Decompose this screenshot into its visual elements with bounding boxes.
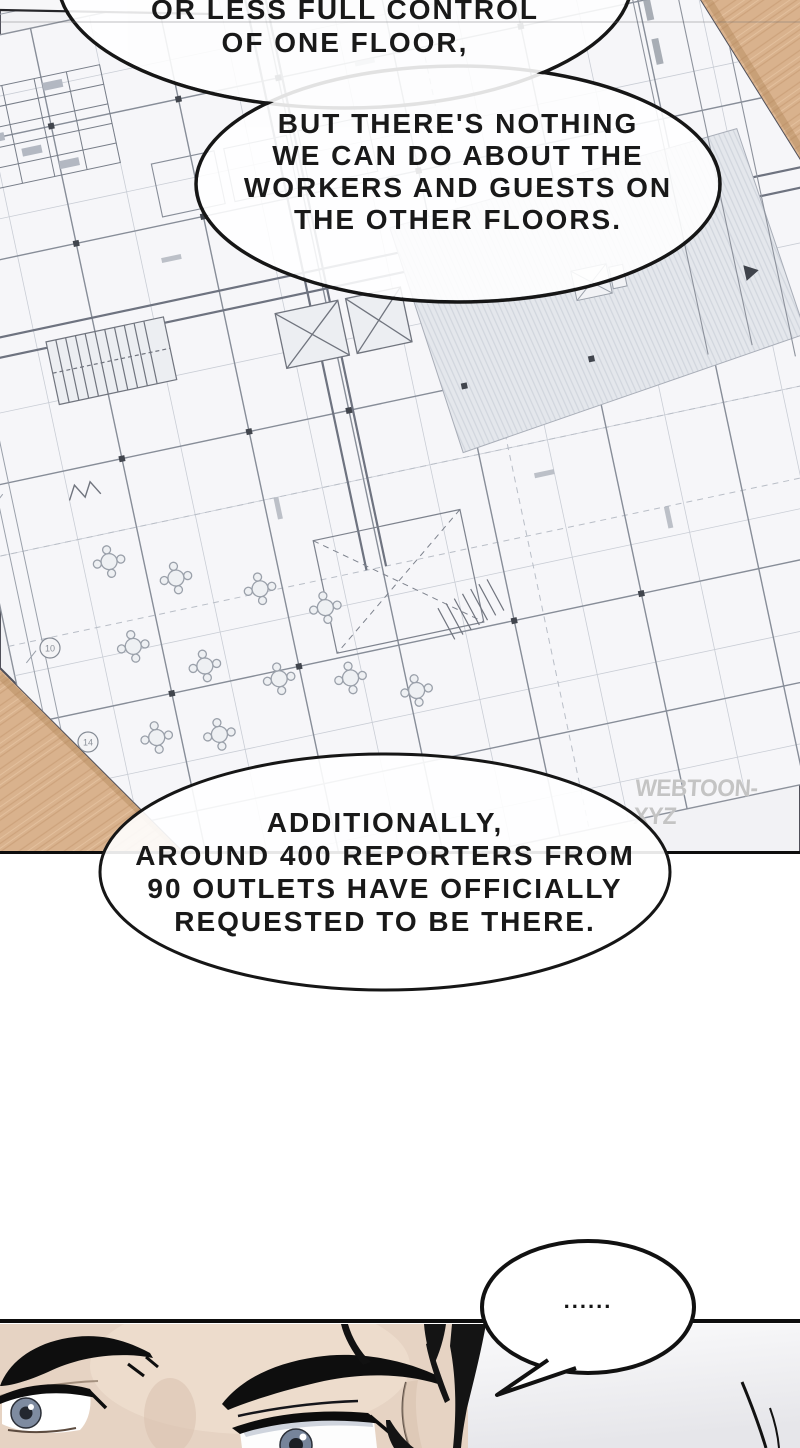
background-gradient (450, 1324, 800, 1448)
panel-border (0, 1319, 800, 1323)
bubble-text-line: REQUESTED TO BE THERE. (85, 905, 685, 938)
blueprint-floorplan: 10 14 (0, 0, 800, 853)
grid-marker-label: 14 (83, 738, 93, 748)
watermark-text: WEBTOON-XYZ (632, 775, 797, 831)
bubble-text-line: 90 OUTLETS HAVE OFFICIALLY (85, 872, 685, 905)
speech-bubble-4-text: ...... (528, 1288, 648, 1314)
grid-marker-label: 10 (45, 644, 55, 654)
blueprint-panel: 10 14 (0, 0, 800, 853)
comic-page: 10 14 OR LESS FULL CONTROL OF ONE FLOOR,… (0, 0, 800, 1448)
image-seam-line (0, 21, 800, 23)
panel-border (0, 851, 800, 854)
face-panel (0, 1324, 800, 1448)
